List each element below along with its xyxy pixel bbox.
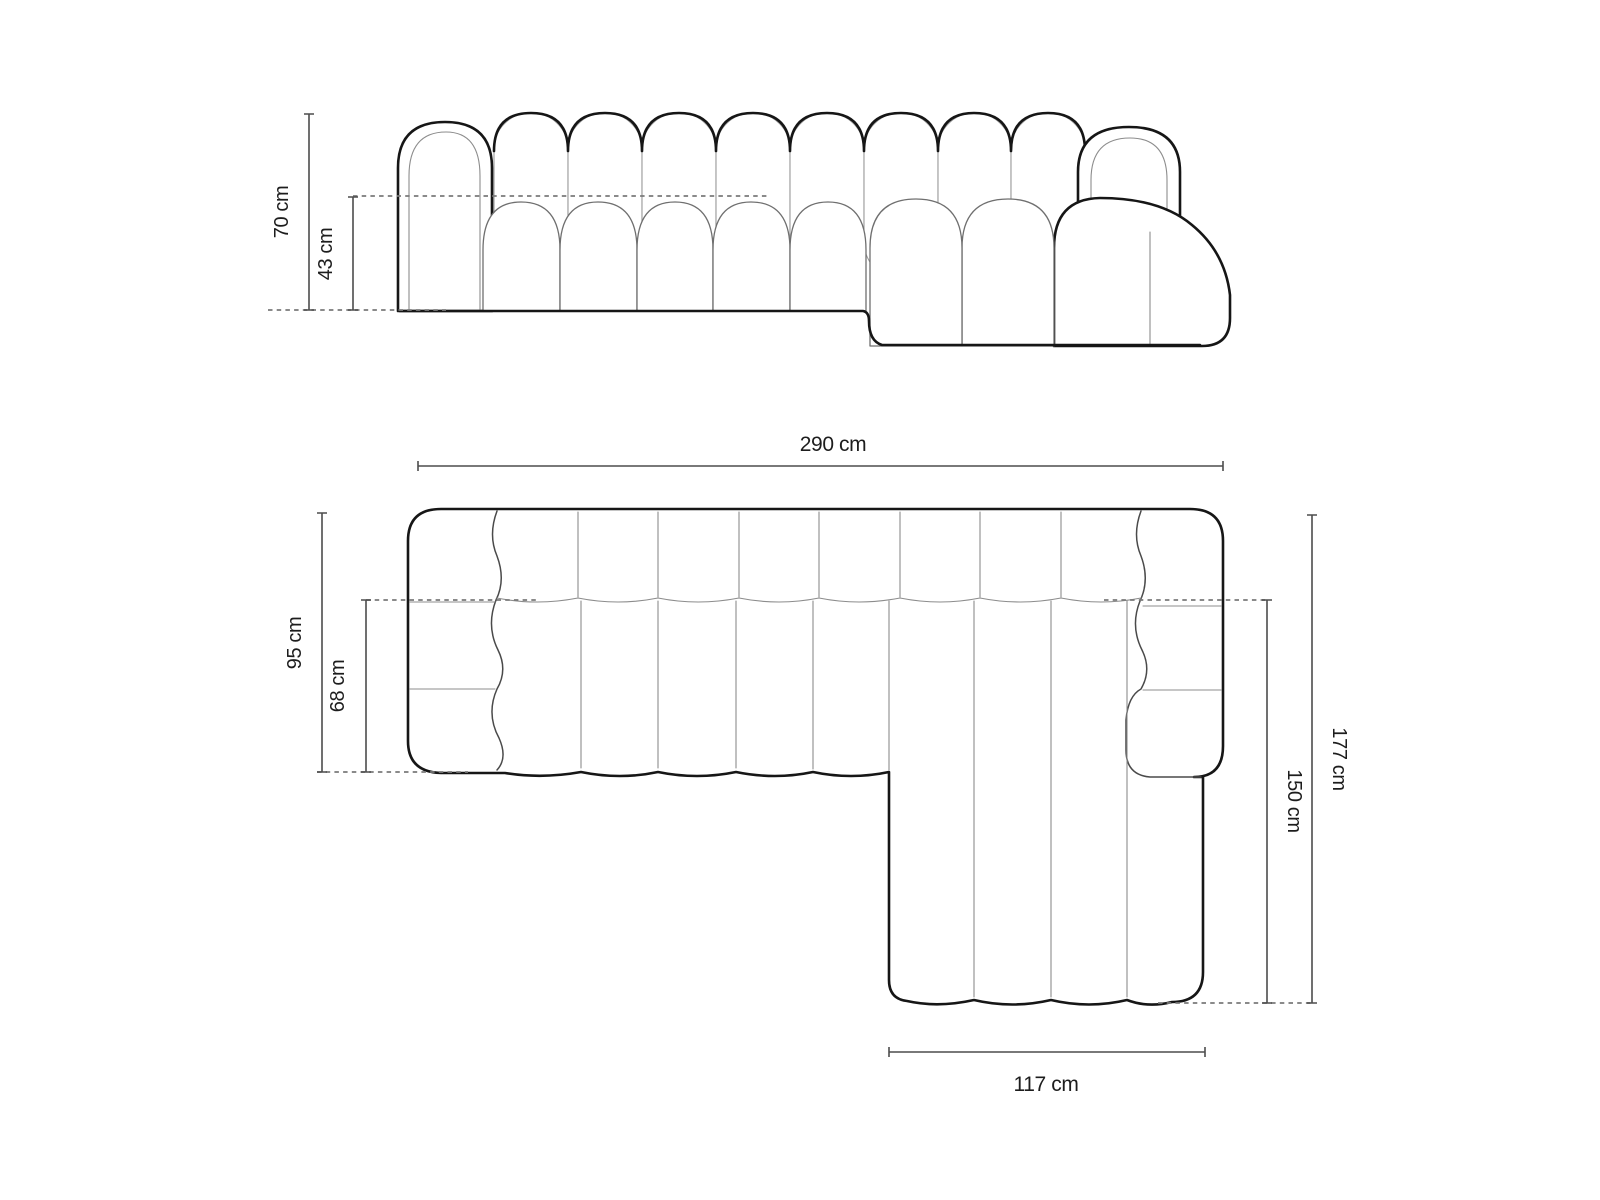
dim-label-chaise-width: 117 cm <box>1014 1073 1079 1096</box>
dim-label-seat-depth: 68 cm <box>327 660 349 712</box>
dim-total-height: 70 cm <box>271 114 314 310</box>
dim-body-depth: 95 cm <box>284 513 327 772</box>
front-view: 70 cm 43 cm <box>268 113 1230 346</box>
dim-total-width: 290 cm <box>418 433 1223 471</box>
dim-label-body-depth: 95 cm <box>284 617 306 669</box>
sofa-dimension-diagram: 70 cm 43 cm <box>0 0 1600 1200</box>
dim-chaise-width: 117 cm <box>889 1047 1205 1096</box>
dim-label-seat-height: 43 cm <box>315 228 337 280</box>
dim-label-chaise-depth: 150 cm <box>1283 769 1305 832</box>
chaise-cushion <box>962 199 1054 346</box>
dim-label-total-width: 290 cm <box>800 433 866 456</box>
seat-cushion <box>483 202 560 311</box>
dim-label-total-depth: 177 cm <box>1328 727 1350 790</box>
dim-line-chaise-width <box>889 1047 1205 1057</box>
front-left-arm <box>398 122 492 311</box>
dim-seat-height: 43 cm <box>315 197 358 310</box>
dim-seat-depth: 68 cm <box>327 600 371 772</box>
seat-cushion <box>713 202 790 311</box>
front-left-arm-outer <box>398 122 492 311</box>
chaise-cushion <box>870 199 962 346</box>
dim-chaise-depth: 150 cm <box>1262 600 1305 1003</box>
diagram-canvas: 70 cm 43 cm <box>0 0 1600 1200</box>
dim-line-body-depth <box>317 513 327 772</box>
dim-label-total-height: 70 cm <box>271 186 293 238</box>
seat-cushion <box>637 202 713 311</box>
dim-line-seat-height <box>348 197 358 310</box>
dim-total-depth: 177 cm <box>1307 515 1350 1003</box>
dim-line-chaise-depth <box>1262 600 1272 1003</box>
dim-line-total-width <box>418 461 1223 471</box>
dim-line-seat-depth <box>361 600 371 772</box>
dim-line-total-height <box>304 114 314 310</box>
seat-cushion <box>790 202 866 311</box>
seat-cushion <box>560 202 637 311</box>
seat-cushion-row <box>483 202 866 311</box>
plan-silhouette <box>408 509 1223 1005</box>
top-view: 290 cm 95 cm 68 cm 150 cm 177 cm 117 cm <box>284 433 1350 1096</box>
chaise-end-cushion <box>1054 198 1230 346</box>
dim-line-total-depth <box>1307 515 1317 1003</box>
